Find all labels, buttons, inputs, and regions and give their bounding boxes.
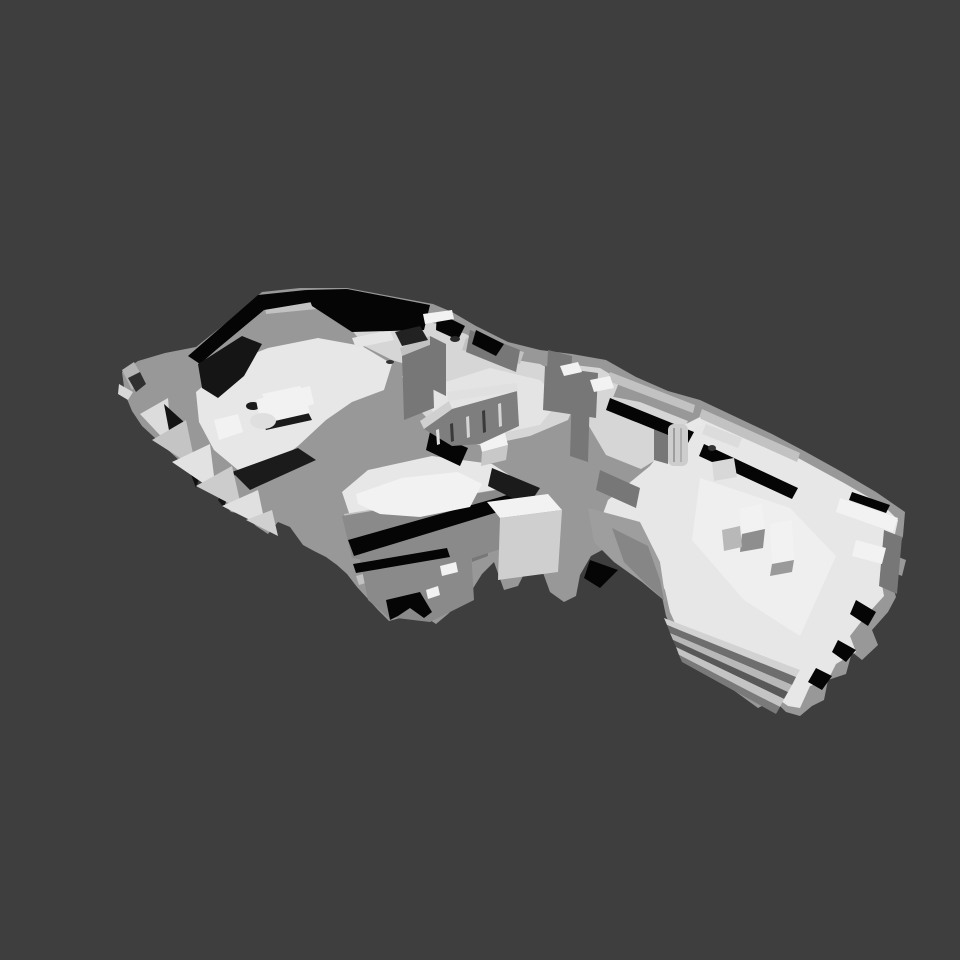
wall-segment [402, 344, 434, 420]
dark-stool [450, 336, 460, 342]
white-box-top [770, 520, 794, 564]
mesh-viewer-viewport[interactable] [0, 0, 960, 960]
cabinet-front [498, 510, 562, 580]
floor-speck [386, 360, 394, 364]
heater-cylinder [668, 424, 688, 466]
round-table [250, 413, 276, 429]
box-top [739, 504, 765, 534]
small-machine [712, 458, 737, 481]
floor-speck [708, 445, 716, 451]
wall-segment [570, 388, 590, 462]
box-small [722, 526, 742, 551]
mesh-render-canvas [0, 0, 960, 960]
